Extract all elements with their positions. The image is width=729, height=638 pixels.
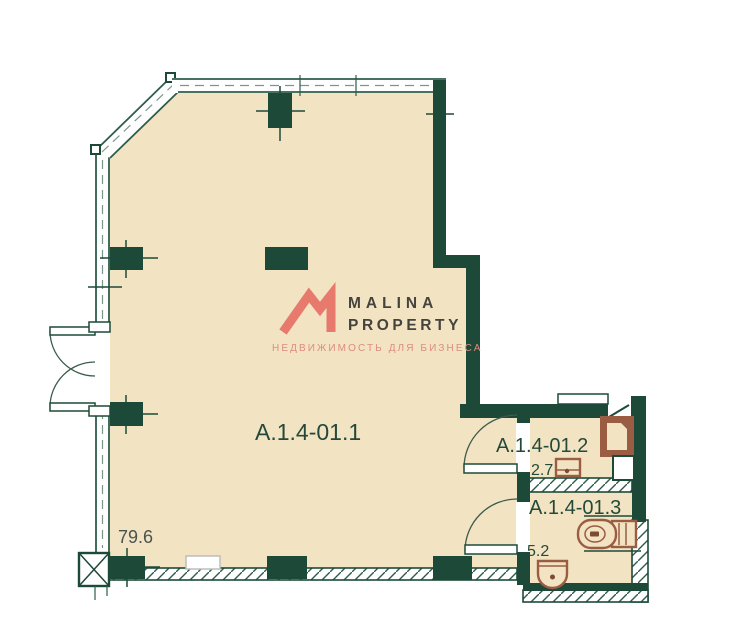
entrance-double-door-left	[50, 322, 110, 416]
room-area-main: 79.6	[118, 527, 153, 547]
entry-door-leaf	[609, 405, 629, 417]
column-bottom-3	[433, 556, 472, 580]
door-leaf	[464, 464, 517, 473]
window-joint	[91, 145, 100, 154]
column-bottom-2	[267, 556, 307, 579]
wall-rooms-top	[460, 404, 608, 418]
toilet	[578, 516, 641, 551]
washbasin-white	[613, 456, 634, 480]
room-label-3: A.1.4-01.3	[529, 497, 621, 519]
floor-opening-marker	[186, 556, 220, 569]
room-area-2: 2.7	[531, 462, 553, 479]
wall-right-mid	[466, 255, 480, 418]
entry-threshold	[558, 394, 608, 404]
wall-bottom-rooms	[523, 590, 648, 602]
floor-plan-svg: MALINA PROPERTY НЕДВИЖИМОСТЬ ДЛЯ БИЗНЕСА…	[0, 0, 729, 638]
sink-small	[556, 459, 580, 476]
floorplan-canvas: MALINA PROPERTY НЕДВИЖИМОСТЬ ДЛЯ БИЗНЕСА…	[0, 0, 729, 638]
jamb-top	[517, 404, 530, 424]
logo-tagline: НЕДВИЖИМОСТЬ ДЛЯ БИЗНЕСА	[272, 343, 482, 354]
shower-tray-basin	[607, 423, 627, 450]
door-leaf	[465, 545, 517, 554]
window-band-top	[172, 75, 446, 96]
shaft-box	[79, 553, 109, 600]
door-jamb	[89, 406, 110, 416]
column-free	[265, 247, 308, 270]
logo-name-line2: PROPERTY	[348, 317, 462, 334]
logo-name-line1: MALINA	[348, 295, 438, 312]
door-jamb	[89, 322, 110, 332]
washbasin	[538, 561, 567, 588]
room-label-main: A.1.4-01.1	[255, 419, 361, 445]
room-label-2: A.1.4-01.2	[496, 435, 588, 457]
room-area-3: 5.2	[527, 543, 549, 560]
wall-right-upper	[433, 80, 446, 268]
